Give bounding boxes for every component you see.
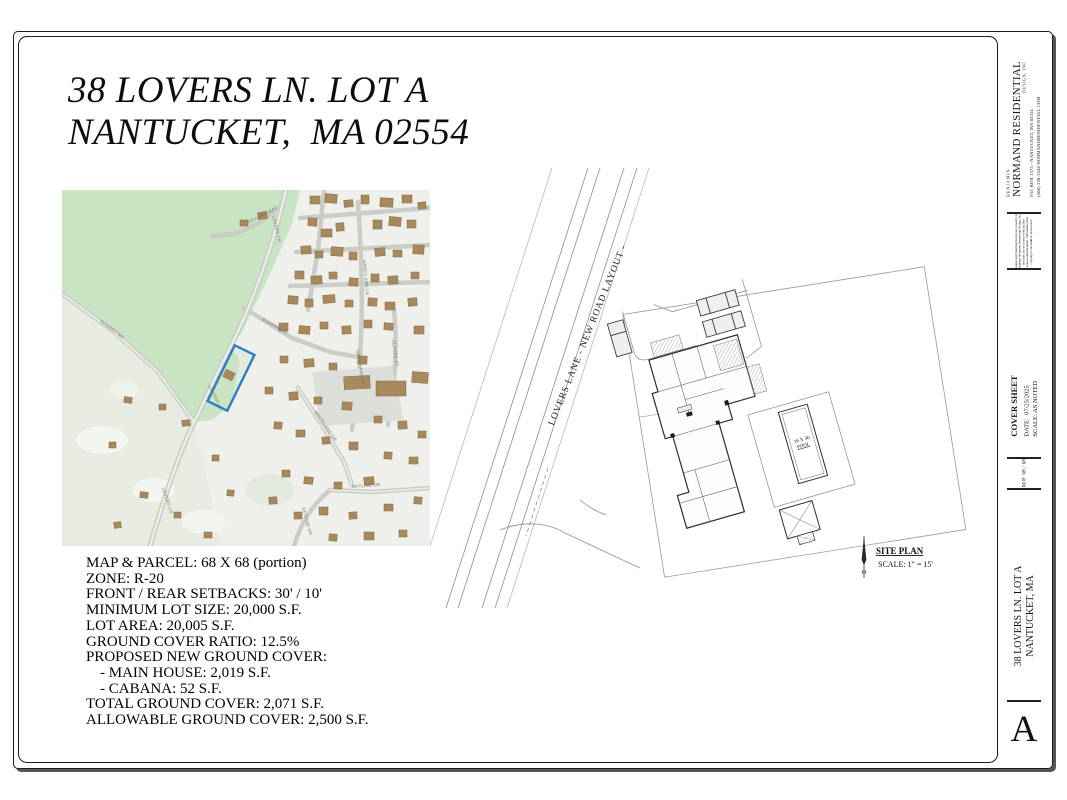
site-plan-caption: SITE PLAN xyxy=(876,546,924,556)
page-title: 38 LOVERS LN. LOT A NANTUCKET, MA 02554 xyxy=(68,70,469,154)
titleblock-map-parcel: M/P: 68 / 68 xyxy=(997,460,1051,486)
road-lines xyxy=(430,168,649,608)
zoning-line: ALLOWABLE GROUND COVER: 2,500 S.F. xyxy=(86,713,369,729)
zoning-line: - MAIN HOUSE: 2,019 S.F. xyxy=(86,666,369,682)
titleblock-sheet-info: COVER SHEET DATE: 07/25/2025 SCALE: AS N… xyxy=(997,336,1051,476)
site-plan-drawing: LOVERS LANE - NEW ROAD LAYOUT - xyxy=(430,168,990,608)
zoning-line: - CABANA: 52 S.F. xyxy=(86,682,369,698)
titleblock-divider xyxy=(1007,268,1041,270)
north-arrow xyxy=(862,536,867,578)
sheet-letter: A xyxy=(997,708,1051,751)
zoning-line: TOTAL GROUND COVER: 2,071 S.F. xyxy=(86,697,369,713)
zoning-line: MINIMUM LOT SIZE: 20,000 S.F. xyxy=(86,603,369,619)
disclaimer-text: Designs and drawings herein are property… xyxy=(1015,195,1034,290)
proposed-buildings: 16 X 36 POOL xyxy=(605,263,867,579)
zoning-line: PROPOSED NEW GROUND COVER: xyxy=(86,650,369,666)
sheet-scale: SCALE: AS NOTED xyxy=(1031,375,1039,436)
site-plan-scale: SCALE: 1" = 15' xyxy=(878,560,933,569)
titleblock: BENJAMIN NORMAND RESIDENTIAL DESIGN, INC… xyxy=(997,36,1051,762)
project-line2: NANTUCKET, MA xyxy=(1024,566,1036,667)
sheet-date: DATE: 07/25/2025 xyxy=(1023,375,1031,436)
firm-small-bottom: DESIGN, INC xyxy=(1023,61,1027,197)
zoning-line: MAP & PARCEL: 68 X 68 (portion) xyxy=(86,556,369,572)
site-plan: LOVERS LANE - NEW ROAD LAYOUT - xyxy=(430,168,990,608)
firm-phone-web: (508) 228-3344 NORMANDRESIDENTIAL.COM xyxy=(1037,61,1042,197)
firm-address: P.O. BOX 1375 - NANTUCKET, MA 02554 xyxy=(1030,61,1035,197)
page-title-line1: 38 LOVERS LN. LOT A xyxy=(68,70,469,112)
main-house xyxy=(635,316,797,528)
zoning-line: GROUND COVER RATIO: 12.5% xyxy=(86,635,369,651)
titleblock-divider xyxy=(1007,488,1041,490)
titleblock-disclaimer: Designs and drawings herein are property… xyxy=(997,218,1051,266)
pool: 16 X 36 POOL xyxy=(748,392,855,507)
sheet-title: COVER SHEET xyxy=(1009,375,1020,436)
page-title-line2: NANTUCKET, MA 02554 xyxy=(68,112,469,154)
titleblock-divider xyxy=(1007,700,1041,702)
zoning-line: LOT AREA: 20,005 S.F. xyxy=(86,619,369,635)
titleblock-project: 38 LOVERS LN. LOT A NANTUCKET, MA xyxy=(997,536,1051,696)
firm-name: NORMAND RESIDENTIAL xyxy=(1011,61,1023,197)
project-line1: 38 LOVERS LN. LOT A xyxy=(1012,566,1024,667)
titleblock-firm: BENJAMIN NORMAND RESIDENTIAL DESIGN, INC… xyxy=(997,44,1051,214)
zoning-notes: MAP & PARCEL: 68 X 68 (portion) ZONE: R-… xyxy=(86,556,369,729)
zoning-line: FRONT / REAR SETBACKS: 30' / 10' xyxy=(86,587,369,603)
zoning-line: ZONE: R-20 xyxy=(86,572,369,588)
locus-map-image: TICCOMA WAY LOVERS LN LOVERS LN LOVERS L… xyxy=(62,190,430,546)
cover-sheet-page: 38 LOVERS LN. LOT A NANTUCKET, MA 02554 xyxy=(0,0,1067,800)
locus-map: TICCOMA WAY LOVERS LN LOVERS LN LOVERS L… xyxy=(62,190,430,546)
map-parcel-text: M/P: 68 / 68 xyxy=(1021,459,1027,487)
cabana xyxy=(779,501,822,548)
